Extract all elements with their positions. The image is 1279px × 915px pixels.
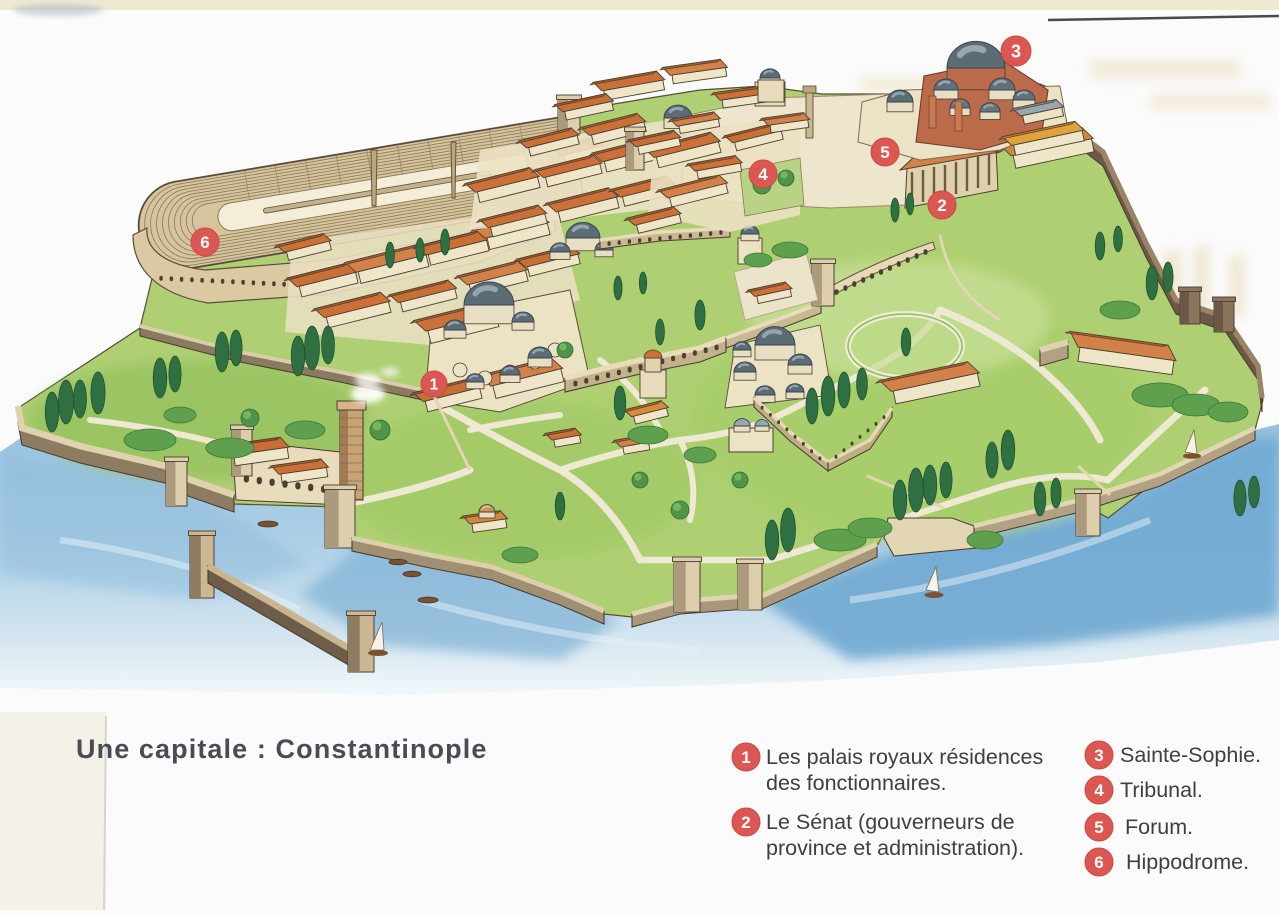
svg-text:3: 3 <box>1094 746 1103 765</box>
svg-text:2: 2 <box>937 196 946 215</box>
svg-text:Sainte-Sophie.: Sainte-Sophie. <box>1120 743 1261 767</box>
svg-text:6: 6 <box>1094 853 1103 872</box>
svg-text:1: 1 <box>430 377 439 394</box>
svg-text:des fonctionnaires.: des fonctionnaires. <box>766 771 946 795</box>
svg-text:province et administration).: province et administration). <box>766 836 1024 860</box>
svg-text:Une capitale : Constantinople: Une capitale : Constantinople <box>76 734 487 764</box>
svg-text:Hippodrome.: Hippodrome. <box>1126 850 1249 874</box>
svg-text:4: 4 <box>758 165 768 184</box>
svg-text:5: 5 <box>880 143 889 162</box>
svg-text:Forum.: Forum. <box>1125 815 1193 839</box>
svg-text:2: 2 <box>741 813 750 832</box>
svg-text:Tribunal.: Tribunal. <box>1120 778 1203 802</box>
svg-text:1: 1 <box>741 748 750 767</box>
svg-text:4: 4 <box>1094 781 1104 800</box>
svg-text:5: 5 <box>1094 818 1103 837</box>
svg-text:Les palais royaux résidences: Les palais royaux résidences <box>766 745 1043 769</box>
svg-text:Le Sénat (gouverneurs de: Le Sénat (gouverneurs de <box>766 810 1015 834</box>
svg-text:3: 3 <box>1011 41 1021 61</box>
svg-text:6: 6 <box>200 233 209 252</box>
